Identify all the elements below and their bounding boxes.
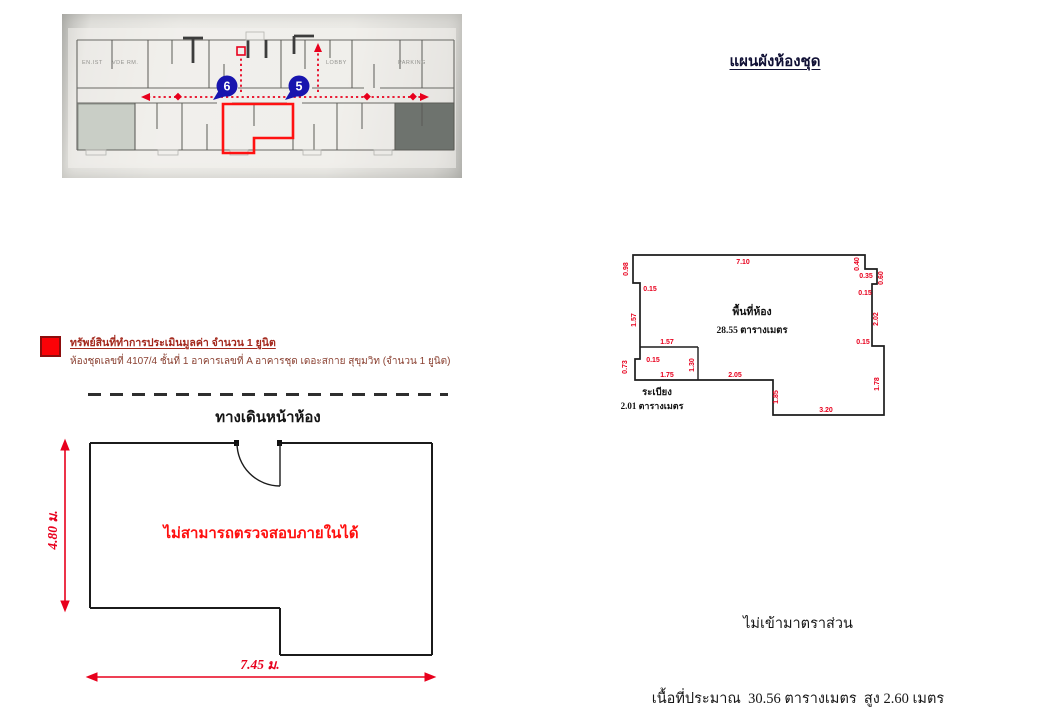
corridor-dashed-line — [88, 393, 448, 396]
unit-plan-diagram: 7.100.980.151.570.400.350.600.152.020.15… — [600, 235, 900, 425]
legend: ทรัพย์สินที่ทำการประเมินมูลค่า จำนวน 1 ย… — [40, 334, 450, 369]
room-label-left-a: EN.IST — [82, 60, 103, 66]
width-dimension: 7.45 ม. — [87, 657, 435, 681]
building-floor-plan-photo: EN.IST VDE RM. LOBBY PARKING 6 — [62, 14, 462, 178]
width-dimension-label: 7.45 ม. — [240, 657, 279, 672]
legend-line1: ทรัพย์สินที่ทำการประเมินมูลค่า จำนวน 1 ย… — [70, 334, 450, 351]
room-area-label: พื้นที่ห้อง — [732, 303, 771, 318]
appraisal-plan-page: EN.IST VDE RM. LOBBY PARKING 6 — [0, 0, 1040, 720]
dimension-label: 1.30 — [689, 358, 696, 372]
dimension-label: 2.02 — [873, 312, 880, 326]
dimension-label: 0.60 — [878, 271, 885, 285]
dimension-label: 1.78 — [874, 377, 881, 391]
dimension-label: 0.35 — [859, 273, 873, 280]
shaded-unit-left — [78, 104, 135, 150]
exterior-plan-diagram: 4.80 ม. 7.45 ม. ไม่สามารถตรวจสอบภายในได้ — [40, 430, 460, 690]
page-title: แผนผังห้องชุด — [650, 49, 900, 73]
balcony-label: ระเบียง — [642, 386, 672, 398]
pin-6-label: 6 — [224, 80, 231, 94]
corridor-label: ทางเดินหน้าห้อง — [88, 405, 448, 429]
dimension-label: 0.15 — [858, 290, 872, 297]
door-swing-arc — [237, 443, 280, 486]
room-label-left-b: VDE RM. — [112, 60, 138, 66]
site-plan-drawing: EN.IST VDE RM. LOBBY PARKING 6 — [62, 14, 462, 178]
dimension-label: 0.73 — [622, 360, 629, 374]
room-label-parking: PARKING — [398, 60, 426, 66]
shaded-unit-right — [395, 103, 454, 150]
dimension-label: 3.20 — [819, 407, 833, 414]
dimension-label: 0.15 — [646, 357, 660, 364]
dimension-label: 1.57 — [631, 313, 638, 327]
room-area-value: 28.55 ตารางเมตร — [716, 326, 788, 336]
balcony-area-value: 2.01 ตารางเมตร — [621, 401, 684, 411]
footer-notes: ไม่เข้ามาตราส่วน เนื้อที่ประมาณ 30.56 ตา… — [548, 562, 1040, 720]
height-dimension-label: 4.80 ม. — [45, 510, 60, 550]
dimension-label: 7.10 — [736, 259, 750, 266]
dimension-label: 0.15 — [643, 286, 657, 293]
exterior-walls — [90, 443, 432, 655]
dimension-label: 0.98 — [623, 262, 630, 276]
dimension-label: 1.75 — [660, 372, 674, 379]
dimension-label: 1.85 — [773, 390, 780, 404]
footer-line-area: เนื้อที่ประมาณ 30.56 ตารางเมตร สูง 2.60 … — [548, 687, 1040, 712]
height-dimension: 4.80 ม. — [45, 440, 69, 611]
dimension-label: 2.05 — [728, 372, 742, 379]
pin-5-label: 5 — [296, 80, 303, 94]
legend-line2: ห้องชุดเลขที่ 4107/4 ชั้นที่ 1 อาคารเลขท… — [70, 354, 450, 369]
legend-red-swatch — [40, 336, 61, 357]
dimension-label: 0.40 — [854, 257, 861, 271]
dimension-label: 0.15 — [856, 339, 870, 346]
footer-line-scale: ไม่เข้ามาตราส่วน — [548, 612, 1040, 637]
no-inspection-note: ไม่สามารถตรวจสอบภายในได้ — [161, 523, 358, 542]
room-label-lobby: LOBBY — [326, 60, 347, 66]
dimension-label: 1.57 — [660, 339, 674, 346]
